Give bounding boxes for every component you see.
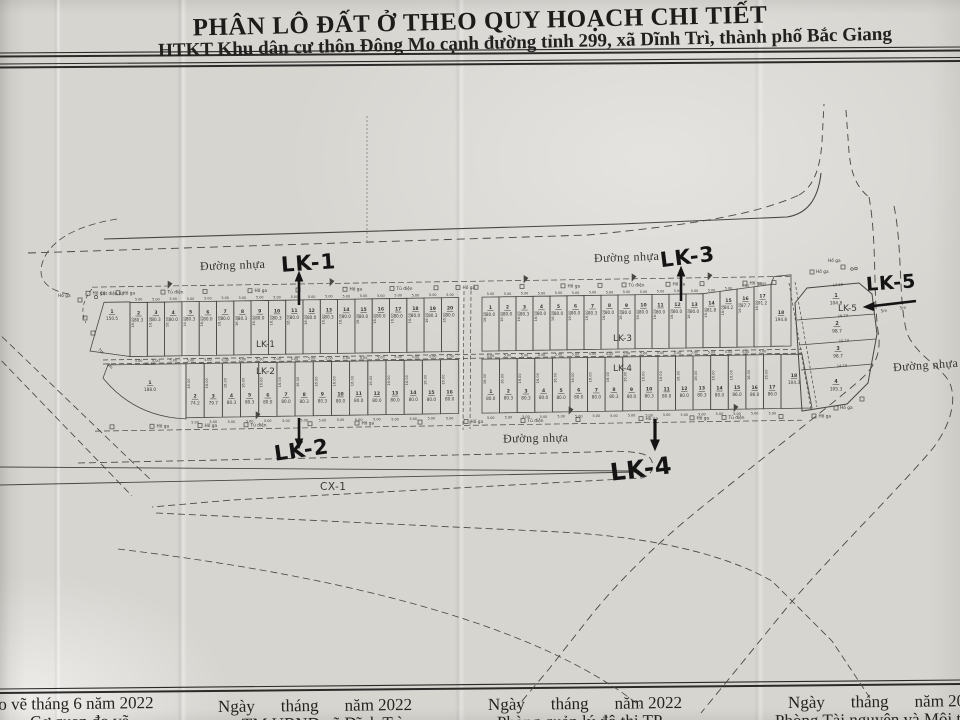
plan-svg: 1150.5280.316.005.005.00380.316.005.005.… xyxy=(0,0,960,720)
manhole-symbol xyxy=(860,397,864,401)
plot-number: 1 xyxy=(834,293,837,299)
plot-depth: 16.00 xyxy=(687,308,691,319)
manhole-label: Hố ga xyxy=(58,292,71,299)
plot-area: 80.0 xyxy=(503,312,513,317)
footer-date-word: Ngày xyxy=(788,693,825,712)
plot-depth: 16.00 xyxy=(373,313,377,324)
plot-width: 5.00 xyxy=(391,417,399,421)
plot-number: 12 xyxy=(374,391,380,397)
plot-cell xyxy=(350,361,368,415)
plot-width: 5.00 xyxy=(300,419,308,423)
plot-number: 7 xyxy=(591,303,594,309)
plot-depth: 16.00 xyxy=(738,302,742,313)
plot-number: 13 xyxy=(326,307,332,313)
plot-depth: 16.00 xyxy=(351,375,355,386)
plot-width: 5.00 xyxy=(360,294,368,298)
green-area-label: CX-1 xyxy=(320,481,346,493)
plot-number: 12 xyxy=(308,308,314,314)
plot-width: 5.00 xyxy=(589,291,597,295)
plot-number: 9 xyxy=(258,309,261,315)
plot-cell xyxy=(746,355,764,409)
plot-number: 17 xyxy=(769,385,775,391)
plot-area: 86.0 xyxy=(750,392,760,397)
plot-depth: 16.00 xyxy=(729,369,733,380)
plot-depth: 16.00 xyxy=(321,314,325,325)
plot-depth: 16.00 xyxy=(166,316,170,327)
plot-area: 188.0 xyxy=(144,387,156,392)
plot-width: 5.00 xyxy=(623,352,631,356)
plot-width: 5.00 xyxy=(555,291,563,295)
manhole-label: Hố ga xyxy=(463,284,476,291)
plot-cell xyxy=(567,296,584,350)
plot-area: 80.0 xyxy=(662,393,672,398)
plot-number: 7 xyxy=(595,387,598,393)
lane-line xyxy=(463,291,464,430)
plot-depth: 16.00 xyxy=(387,375,391,386)
plot-depth: 16.00 xyxy=(483,311,487,322)
plot-cell xyxy=(303,300,320,354)
plot-width: 5.00 xyxy=(657,289,665,293)
plot-number: 14 xyxy=(708,301,714,307)
manhole-label: Hố ga xyxy=(568,282,581,289)
plot-area: 80.0 xyxy=(571,311,581,316)
plot-number: 3 xyxy=(523,304,526,310)
plot-number: 10 xyxy=(646,387,652,393)
hand-arrowhead xyxy=(864,303,874,311)
road-edge xyxy=(41,219,117,294)
plot-cell xyxy=(422,360,440,414)
road-label-bottom: Đường nhựa xyxy=(503,430,569,446)
cx1-boundary xyxy=(156,513,872,701)
plot-depth: 16.00 xyxy=(534,310,538,321)
plot-depth: 16.00 xyxy=(636,309,640,320)
plot-width: 5.00 xyxy=(256,296,264,300)
plot-number: 11 xyxy=(356,391,362,397)
plot-depth: 16.00 xyxy=(391,313,395,324)
plot-area: 150.5 xyxy=(106,316,118,321)
flag-symbol xyxy=(708,273,712,280)
block-label-lk3: LK-3 xyxy=(613,334,632,344)
dim-label: 22.00 xyxy=(145,362,156,366)
plot-area: 80.3 xyxy=(324,314,334,319)
manhole-symbol xyxy=(810,270,814,274)
plot-area: 80.0 xyxy=(393,313,403,318)
plot-depth: 16.00 xyxy=(619,309,623,320)
service-line xyxy=(95,420,802,431)
lk5-dim: 14.74 xyxy=(837,364,848,369)
plot-number: 9 xyxy=(625,303,628,309)
plot-area: 80.0 xyxy=(673,309,683,314)
manhole-symbol xyxy=(622,283,626,287)
alley-line xyxy=(789,283,811,409)
plot-width: 5.00 xyxy=(663,413,671,417)
plot-width: 5.00 xyxy=(428,417,436,421)
footer-date-word: tháng xyxy=(851,692,889,711)
manhole-symbol xyxy=(666,282,670,286)
footer-org-1: Cơ quan đo vẽ xyxy=(30,711,129,720)
plot-area: 80.0 xyxy=(255,316,265,321)
manhole-symbol xyxy=(456,285,460,289)
plot-depth: 16.00 xyxy=(332,375,336,386)
handwritten-lk1: LK-1 xyxy=(280,249,337,277)
plot-depth: 16.00 xyxy=(200,316,204,327)
plot-area: 80.0 xyxy=(537,311,547,316)
plot-area: 80.3 xyxy=(134,317,144,322)
plot-number: 20 xyxy=(447,306,453,312)
plot-cell xyxy=(313,361,331,415)
plot-depth: 16.00 xyxy=(517,311,521,322)
plot-number: 2 xyxy=(835,321,838,327)
manhole-symbol xyxy=(639,417,643,421)
road-width-label: 5m xyxy=(880,308,887,314)
plot-width: 5.00 xyxy=(377,355,385,359)
plot-width: 5.00 xyxy=(429,293,437,297)
plot-depth: 16.00 xyxy=(218,315,222,326)
plot-cell xyxy=(407,298,424,352)
plot-area: 98.7 xyxy=(833,353,843,359)
plot-number: 5 xyxy=(557,304,560,310)
plot-number: 10 xyxy=(274,308,280,314)
manhole-label: Hố ga xyxy=(123,289,136,296)
flag-symbol xyxy=(524,276,528,283)
plot-number: 9 xyxy=(321,392,324,398)
plot-cell xyxy=(658,356,676,410)
plot-width: 5.00 xyxy=(446,354,454,358)
plot-width: 5.00 xyxy=(505,416,513,420)
plot-area: 80.0 xyxy=(680,393,690,398)
flag-symbol xyxy=(168,281,172,288)
plot-area: 80.3 xyxy=(151,317,161,322)
lk5-divider xyxy=(799,339,876,345)
cabinet-label: Tủ điện xyxy=(250,421,267,428)
plot-depth: 16.00 xyxy=(187,378,191,389)
plot-area: 86.0 xyxy=(732,392,742,397)
plot-area: 80.0 xyxy=(169,317,179,322)
plot-cell xyxy=(533,296,550,350)
plot-area: 80.0 xyxy=(342,314,352,319)
plot-cell xyxy=(372,299,389,353)
plot-depth: 16.00 xyxy=(500,311,504,322)
plot-width: 5.00 xyxy=(169,359,177,363)
plot-area: 80.0 xyxy=(336,398,346,403)
manhole-label: Hố ga xyxy=(362,420,375,427)
plot-depth: 16.00 xyxy=(670,308,674,319)
plot-number: 16 xyxy=(751,385,757,391)
plot-width: 5.00 xyxy=(572,352,580,356)
plot-area: 80.0 xyxy=(622,310,632,315)
plot-area: 80.0 xyxy=(307,315,317,320)
plot-area: 80.3 xyxy=(238,316,248,321)
plot-number: 5 xyxy=(248,393,251,399)
plot-cell xyxy=(147,302,164,356)
footer-rule xyxy=(0,684,960,693)
plot-width: 5.00 xyxy=(640,290,648,294)
plot-number: 10 xyxy=(640,303,646,309)
plot-cell xyxy=(737,287,754,347)
plot-width: 5.00 xyxy=(657,351,665,355)
plot-width: 5.00 xyxy=(521,292,529,296)
hand-arrowhead xyxy=(651,440,659,450)
plot-cell xyxy=(331,361,349,415)
plot-area: 80.0 xyxy=(554,311,564,316)
road-edge-solid xyxy=(0,467,636,471)
plot-depth: 16.00 xyxy=(223,377,227,388)
manhole-label: Hố ga xyxy=(255,287,268,294)
manhole-symbol xyxy=(418,420,422,424)
plot-width: 5.00 xyxy=(555,353,563,357)
plot-number: 8 xyxy=(612,387,615,393)
footer-date-word: tháng xyxy=(551,694,589,713)
manhole-label: Hố ga xyxy=(828,257,841,264)
plot-width: 5.00 xyxy=(487,416,495,420)
plot-area: 80.0 xyxy=(656,309,666,314)
plot-cell xyxy=(550,296,567,350)
road-edge xyxy=(83,289,92,323)
plot-depth: 16.00 xyxy=(568,310,572,321)
plot-number: 2 xyxy=(137,310,140,316)
plot-depth: 16.00 xyxy=(242,377,246,388)
plot-width: 5.00 xyxy=(708,289,716,293)
plot-number: 14 xyxy=(410,390,416,396)
plot-number: 3 xyxy=(836,346,839,352)
plot-number: 12 xyxy=(681,386,687,392)
plot-area: 80.3 xyxy=(609,394,619,399)
manhole-symbol xyxy=(834,406,838,410)
manhole-symbol xyxy=(343,287,347,291)
lk5-dim: 14.60 xyxy=(833,283,844,288)
plot-width: 5.00 xyxy=(446,416,454,420)
plot-area: 80.0 xyxy=(354,398,364,403)
plot-depth: 16.00 xyxy=(408,312,412,323)
plot-width: 5.00 xyxy=(725,350,733,354)
plot-width: 5.00 xyxy=(572,291,580,295)
plot-area: 81.8 xyxy=(707,308,717,313)
plot-width: 5.00 xyxy=(187,358,195,362)
plot-depth: 16.00 xyxy=(252,315,256,326)
plot-depth: 16.00 xyxy=(425,312,429,323)
plot-number: 1 xyxy=(148,380,151,386)
plot-width: 5.00 xyxy=(187,297,195,301)
plot-depth: 16.00 xyxy=(260,377,264,388)
plot-depth: 16.00 xyxy=(694,370,698,381)
plot-width: 5.00 xyxy=(610,414,618,418)
cabinet-label: Tủ điện xyxy=(728,414,745,421)
manhole-label: Hố ga xyxy=(471,418,484,425)
plot-number: 12 xyxy=(674,302,680,308)
plot-width: 5.00 xyxy=(429,355,437,359)
road-edge-solid xyxy=(104,173,821,239)
plot-area: 91.2 xyxy=(758,301,768,306)
plot-number: 10 xyxy=(337,391,343,397)
plot-depth: 16.00 xyxy=(483,373,487,384)
plot-number: 15 xyxy=(360,307,366,313)
footer-date-word: năm 2022 xyxy=(615,693,683,713)
plot-width: 5.00 xyxy=(725,286,733,290)
plot-area: 105.3 xyxy=(830,386,843,392)
plot-area: 80.3 xyxy=(227,400,237,405)
manhole-symbol xyxy=(841,265,845,269)
plot-width: 5.00 xyxy=(628,414,636,418)
plot-width: 5.00 xyxy=(409,417,417,421)
plot-depth: 16.00 xyxy=(553,372,557,383)
plot-number: 1 xyxy=(489,389,492,395)
manhole-label: Hố ga xyxy=(673,281,686,288)
plot-width: 5.00 xyxy=(606,352,614,356)
plot-cell xyxy=(763,354,781,408)
plot-number: 13 xyxy=(691,302,697,308)
plot-depth: 16.00 xyxy=(183,316,187,327)
plot-depth: 16.00 xyxy=(287,314,291,325)
plot-area: 80.0 xyxy=(263,399,273,404)
plot-width: 5.00 xyxy=(325,356,333,360)
plot-depth: 16.00 xyxy=(659,370,663,381)
plot-cell xyxy=(355,299,372,353)
plot-cell xyxy=(517,358,535,412)
plot-width: 5.00 xyxy=(557,415,565,419)
plot-number: 16 xyxy=(378,307,384,313)
plot-area: 80.0 xyxy=(627,394,637,399)
plot-area: 80.3 xyxy=(428,313,438,318)
manhole-symbol xyxy=(464,419,468,423)
manhole-symbol xyxy=(248,289,252,293)
plot-area: 80.0 xyxy=(220,316,230,321)
lk5-dim: 16.74 xyxy=(838,314,849,319)
footer-date-word: Ngày xyxy=(218,697,255,716)
plot-width: 5.00 xyxy=(204,358,212,362)
plot-area: 80.0 xyxy=(486,396,496,401)
plot-depth: 16.00 xyxy=(131,317,135,328)
handwritten-lk5: LK-5 xyxy=(865,270,917,295)
road-edge xyxy=(78,451,653,507)
plot-depth: 16.00 xyxy=(269,314,273,325)
plot-width: 5.00 xyxy=(674,351,682,355)
plot-number: 3 xyxy=(524,388,527,394)
plot-depth: 16.00 xyxy=(356,313,360,324)
plot-width: 5.00 xyxy=(308,295,316,299)
footer-date-word: năm 2022 xyxy=(915,691,960,711)
manhole-symbol xyxy=(561,284,565,288)
block-label-lk1: LK-1 xyxy=(256,340,275,350)
plot-number: 15 xyxy=(428,390,434,396)
plot-number: 4 xyxy=(230,393,233,399)
plot-width: 5.00 xyxy=(221,296,229,300)
plot-width: 5.00 xyxy=(152,297,160,301)
plot-area: 80.0 xyxy=(203,316,213,321)
plot-width: 5.00 xyxy=(342,294,350,298)
flag-symbol xyxy=(330,279,334,286)
plot-area: 80.0 xyxy=(390,397,400,402)
plot-width: 5.00 xyxy=(394,355,402,359)
footer-org-2: TM.UBND xã Dĩnh Trì xyxy=(242,713,403,720)
plot-depth: 16.00 xyxy=(704,307,708,318)
plot-number: 19 xyxy=(430,306,436,312)
plot-width: 5.00 xyxy=(337,418,345,422)
plot-number: 5 xyxy=(189,310,192,316)
road-edge-solid xyxy=(0,472,636,485)
plot-width: 5.00 xyxy=(487,354,495,358)
plot-depth: 16.00 xyxy=(653,309,657,320)
plot-width: 5.00 xyxy=(412,293,420,297)
plot-width: 5.00 xyxy=(282,419,290,423)
flag-symbol xyxy=(569,407,573,414)
plot-number: 2 xyxy=(507,389,510,395)
plot-area: 80.0 xyxy=(715,392,725,397)
plot-area: 80.0 xyxy=(411,313,421,318)
plot-number: 9 xyxy=(630,387,633,393)
plot-width: 5.00 xyxy=(446,293,454,297)
plot-area: 80.0 xyxy=(639,310,649,315)
plot-width: 5.00 xyxy=(169,297,177,301)
manhole-symbol xyxy=(308,422,312,426)
plot-area: 80.3 xyxy=(318,399,328,404)
manhole-symbol xyxy=(851,268,854,271)
plot-cell xyxy=(482,359,500,413)
plot-area: 80.0 xyxy=(359,314,369,319)
plot-area: 80.0 xyxy=(427,397,437,402)
plot-number: 8 xyxy=(608,303,611,309)
plot-depth: 16.00 xyxy=(278,376,282,387)
plot-number: 4 xyxy=(834,379,838,385)
plot-cell xyxy=(728,355,746,409)
plot-cell xyxy=(204,363,222,417)
plot-width: 5.00 xyxy=(759,350,767,354)
lane-line xyxy=(470,291,471,430)
plot-number: 4 xyxy=(540,304,543,310)
cx1-boundary xyxy=(118,549,640,706)
hand-arrow-lk5 xyxy=(873,301,916,306)
plot-number: 6 xyxy=(206,309,209,315)
plot-cell xyxy=(588,357,606,411)
plot-cell xyxy=(404,360,422,414)
flag-symbol xyxy=(632,274,636,281)
plot-number: 6 xyxy=(574,304,577,310)
plot-cell xyxy=(368,361,386,415)
plot-number: 6 xyxy=(577,388,580,394)
manhole-symbol xyxy=(110,425,114,429)
cabinet-label: Tủ điện xyxy=(396,285,413,292)
plot-number: 2 xyxy=(193,394,196,400)
block-label-lk5: LK-5 xyxy=(838,304,857,314)
plot-number: 18 xyxy=(791,373,797,379)
plot-width: 5.00 xyxy=(538,291,546,295)
plot-number: 4 xyxy=(172,310,175,316)
manhole-symbol xyxy=(855,267,858,270)
plot-depth: 16.00 xyxy=(747,369,751,380)
manhole-symbol xyxy=(390,287,394,291)
plot-depth: 16.00 xyxy=(304,314,308,325)
plot-depth: 16.00 xyxy=(369,375,373,386)
plot-depth: 16.00 xyxy=(518,373,522,384)
plot-cell xyxy=(711,355,729,409)
service-line xyxy=(92,276,790,287)
plot-area: 80.3 xyxy=(186,317,196,322)
plot-width: 5.00 xyxy=(768,411,776,415)
plot-depth: 16.00 xyxy=(423,374,427,385)
plot-area: 98.7 xyxy=(832,328,842,334)
plot-depth: 16.00 xyxy=(442,374,446,385)
plot-width: 5.00 xyxy=(412,355,420,359)
road-width-label: 5m xyxy=(899,305,906,311)
plot-area: 80.3 xyxy=(588,310,598,315)
plot-area: 80.0 xyxy=(445,397,455,402)
plot-area: 80.0 xyxy=(690,309,700,314)
plot-depth: 16.00 xyxy=(205,377,209,388)
cabinet-label: Tủ điện xyxy=(628,281,645,288)
plot-width: 5.00 xyxy=(273,295,281,299)
road-width-label: 7m xyxy=(97,347,105,355)
road-width-label: 5m xyxy=(106,362,114,370)
manhole-symbol xyxy=(150,424,154,428)
